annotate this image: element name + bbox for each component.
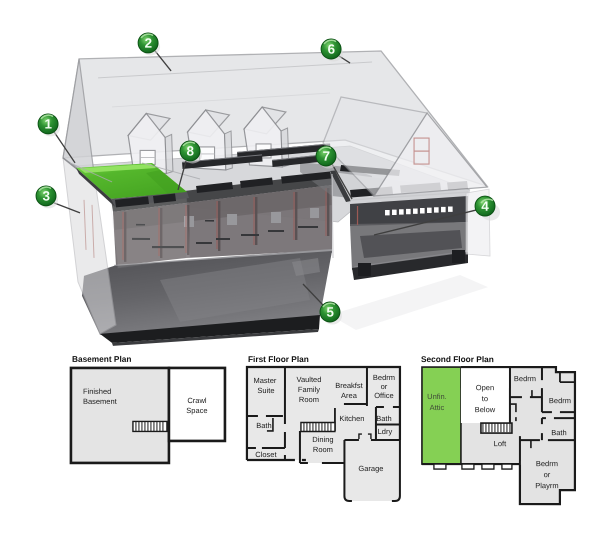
svg-text:Room: Room [313,445,333,454]
svg-text:Bedrm: Bedrm [373,373,395,382]
svg-text:Vaulted: Vaulted [297,375,322,384]
svg-text:Breakfst: Breakfst [335,381,363,390]
svg-text:Attic: Attic [430,403,445,412]
svg-text:Garage: Garage [358,464,383,473]
svg-text:Office: Office [374,391,393,400]
svg-text:Bedrm: Bedrm [549,396,571,405]
svg-text:Area: Area [341,391,358,400]
svg-text:Unfin.: Unfin. [427,392,447,401]
svg-text:Room: Room [299,395,319,404]
svg-text:Open: Open [476,383,494,392]
svg-text:Basement Plan: Basement Plan [72,354,131,364]
svg-text:Bedrm: Bedrm [536,459,558,468]
svg-text:Playrm: Playrm [535,481,558,490]
svg-text:Below: Below [475,405,496,414]
svg-text:Master: Master [253,376,276,385]
svg-text:Bath: Bath [256,421,271,430]
svg-text:Closet: Closet [255,450,277,459]
svg-text:Bedrm: Bedrm [514,374,536,383]
svg-text:Finished: Finished [83,387,111,396]
svg-text:Suite: Suite [257,386,274,395]
svg-text:Second Floor Plan: Second Floor Plan [421,354,494,364]
svg-text:or: or [544,470,551,479]
svg-text:Bath: Bath [376,414,391,423]
svg-text:First Floor Plan: First Floor Plan [248,354,309,364]
svg-text:Ldry: Ldry [378,427,393,436]
svg-text:Family: Family [298,385,320,394]
svg-text:to: to [482,394,488,403]
svg-text:Crawl: Crawl [187,396,207,405]
svg-text:Space: Space [186,406,207,415]
svg-text:Loft: Loft [494,439,507,448]
svg-text:Dining: Dining [312,435,333,444]
svg-text:or: or [381,382,388,391]
svg-text:Basement: Basement [83,397,118,406]
svg-text:Kitchen: Kitchen [339,414,364,423]
svg-text:Bath: Bath [551,428,566,437]
